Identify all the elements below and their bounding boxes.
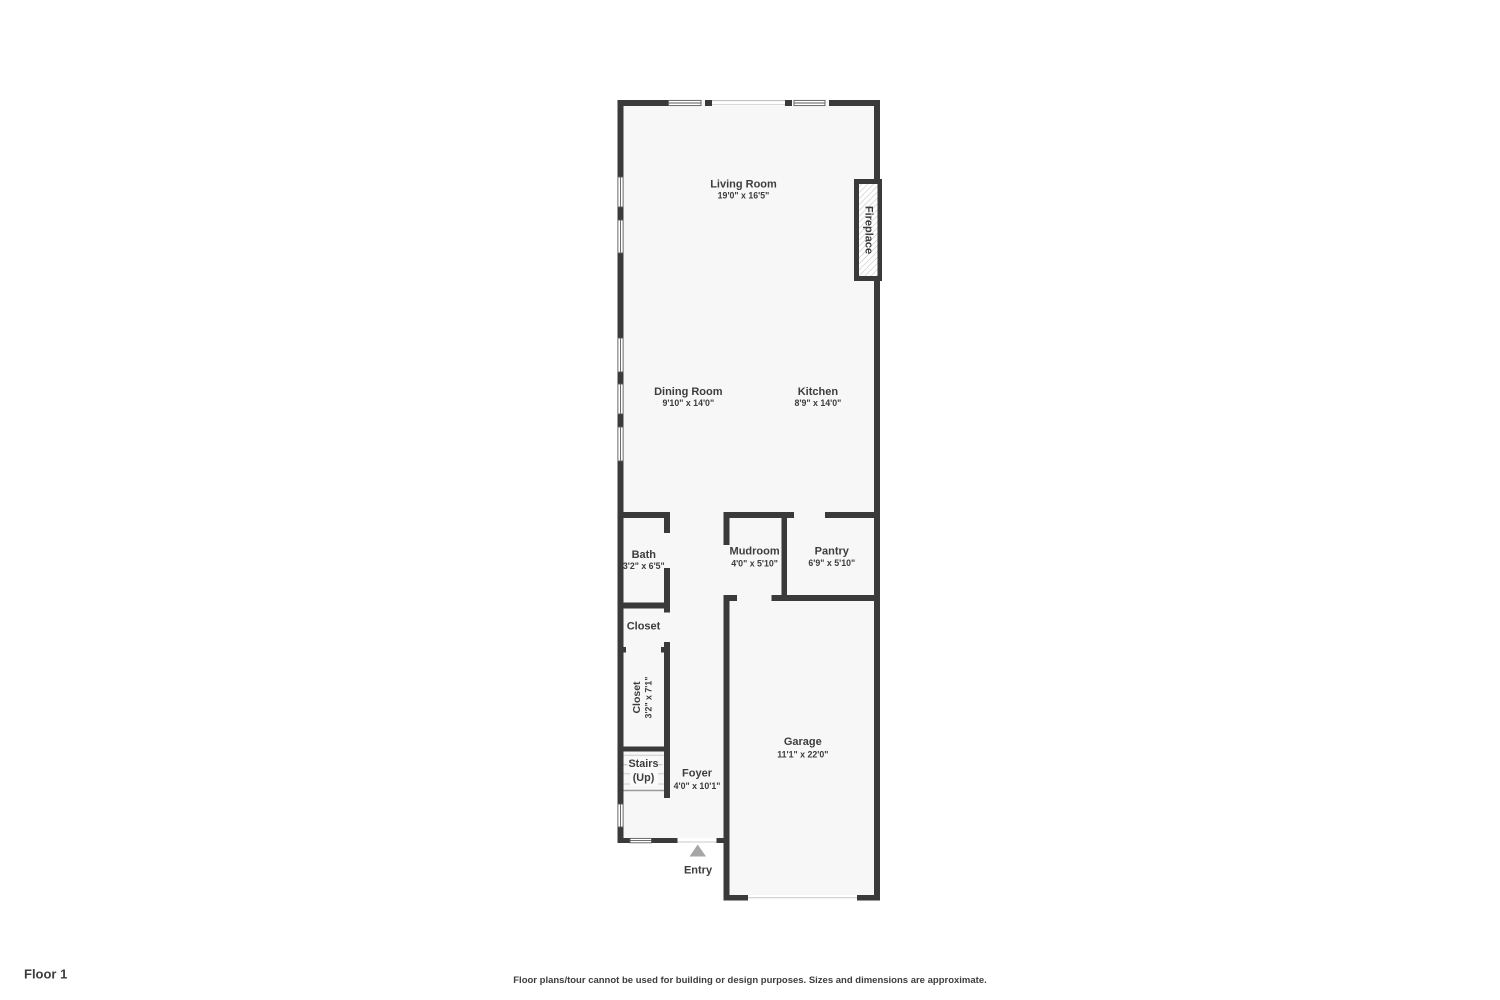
svg-text:3'2" x 6'5": 3'2" x 6'5"	[623, 561, 665, 571]
svg-text:Fireplace: Fireplace	[862, 206, 874, 254]
svg-text:11'1" x 22'0": 11'1" x 22'0"	[777, 749, 828, 759]
svg-text:9'10" x 14'0": 9'10" x 14'0"	[662, 398, 714, 408]
svg-text:Floor 1: Floor 1	[24, 967, 67, 982]
svg-text:Entry: Entry	[684, 864, 713, 876]
svg-text:6'9" x 5'10": 6'9" x 5'10"	[808, 558, 855, 568]
svg-text:4'0" x 10'1": 4'0" x 10'1"	[674, 781, 721, 791]
svg-text:Garage: Garage	[784, 736, 822, 748]
svg-text:Dining Room: Dining Room	[654, 386, 723, 398]
svg-text:Pantry: Pantry	[815, 546, 850, 558]
svg-text:(Up): (Up)	[633, 772, 655, 784]
svg-text:19'0" x 16'5": 19'0" x 16'5"	[718, 190, 770, 200]
svg-text:4'0" x 5'10": 4'0" x 5'10"	[731, 558, 778, 568]
svg-text:Floor plans/tour cannot be use: Floor plans/tour cannot be used for buil…	[513, 975, 987, 986]
svg-text:Kitchen: Kitchen	[798, 386, 839, 398]
svg-text:Stairs: Stairs	[628, 758, 658, 770]
svg-text:Closet: Closet	[631, 681, 643, 714]
svg-text:Closet: Closet	[627, 620, 661, 632]
svg-text:Bath: Bath	[632, 549, 657, 561]
svg-text:Foyer: Foyer	[682, 768, 713, 780]
svg-text:Mudroom: Mudroom	[730, 546, 780, 558]
svg-text:3'2" x 7'1": 3'2" x 7'1"	[644, 677, 654, 719]
svg-text:Living Room: Living Room	[710, 179, 777, 191]
svg-text:8'9" x 14'0": 8'9" x 14'0"	[795, 398, 842, 408]
